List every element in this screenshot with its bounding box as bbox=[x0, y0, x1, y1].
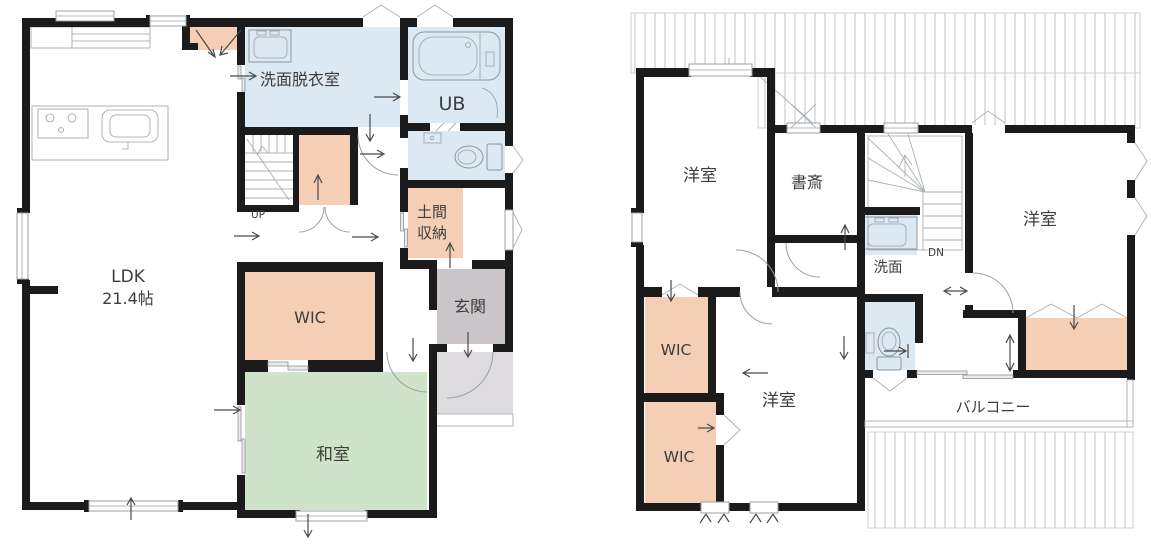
room-label-washbasin-2f: 洗面 bbox=[874, 259, 903, 276]
floor-plan-canvas: LDK 21.4帖 洗面脱衣室 UB 土間 収納 玄関 WIC 和室 UP bbox=[0, 0, 1151, 547]
stairs-1f-icon bbox=[245, 135, 293, 200]
kitchen-island-icon bbox=[32, 106, 168, 160]
room-tatami bbox=[245, 372, 427, 510]
porch-step bbox=[433, 414, 513, 426]
lower-roof-hatch bbox=[868, 432, 1133, 528]
entrance-porch bbox=[437, 352, 513, 414]
room-label-doma-1: 土間 bbox=[417, 203, 447, 221]
room-label-washroom: 洗面脱衣室 bbox=[260, 70, 340, 89]
direction-arrows-2f bbox=[667, 104, 1078, 432]
room-label-ldk: LDK bbox=[111, 267, 146, 287]
room-label-wic-lower: WIC bbox=[664, 448, 695, 466]
kitchen-counter-icon bbox=[31, 27, 150, 48]
room-label-wic-upper: WIC bbox=[661, 341, 692, 359]
room-toilet-1f bbox=[408, 131, 505, 180]
room-label-ldk-size: 21.4帖 bbox=[102, 289, 154, 308]
room-toilet-2f bbox=[865, 302, 915, 370]
room-label-bedroom-s: 洋室 bbox=[762, 391, 796, 411]
stairs-dn-label: DN bbox=[928, 247, 944, 259]
balcony-label: バルコニー bbox=[956, 398, 1031, 416]
floor2-plan: 洋室 書斎 洗面 DN 洋室 WIC WIC 洋室 バルコニー bbox=[631, 13, 1147, 528]
room-label-bedroom-nw: 洋室 bbox=[683, 166, 717, 186]
room-label-doma-2: 収納 bbox=[417, 224, 447, 242]
room-label-wic-1f: WIC bbox=[294, 308, 326, 327]
room-label-study: 書斎 bbox=[791, 173, 823, 192]
floorplan-page: LDK 21.4帖 洗面脱衣室 UB 土間 収納 玄関 WIC 和室 UP bbox=[0, 0, 1151, 547]
room-doma bbox=[408, 188, 463, 258]
room-label-ub: UB bbox=[439, 93, 466, 115]
room-label-tatami: 和室 bbox=[316, 445, 350, 465]
stairs-up-label: UP bbox=[251, 209, 265, 221]
room-label-entrance: 玄関 bbox=[454, 297, 486, 316]
floor1-plan: LDK 21.4帖 洗面脱衣室 UB 土間 収納 玄関 WIC 和室 UP bbox=[17, 5, 523, 537]
room-label-bedroom-e: 洋室 bbox=[1023, 210, 1057, 230]
closet-stair-1f bbox=[299, 135, 350, 205]
